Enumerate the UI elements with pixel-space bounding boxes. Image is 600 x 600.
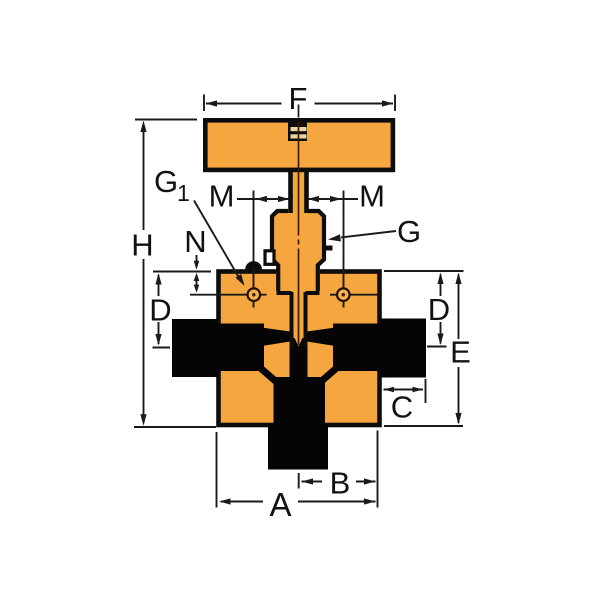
svg-text:M: M xyxy=(359,179,385,214)
svg-text:H: H xyxy=(131,228,153,263)
svg-text:A: A xyxy=(269,486,291,523)
svg-text:B: B xyxy=(330,466,351,501)
svg-text:E: E xyxy=(450,335,471,370)
svg-text:M: M xyxy=(209,179,235,214)
svg-text:N: N xyxy=(184,224,206,259)
svg-text:1: 1 xyxy=(177,180,190,206)
svg-text:C: C xyxy=(391,390,413,425)
svg-text:F: F xyxy=(289,81,308,116)
svg-text:G: G xyxy=(154,164,178,199)
svg-text:D: D xyxy=(428,292,450,327)
svg-text:G: G xyxy=(397,214,421,249)
svg-text:D: D xyxy=(149,293,171,328)
